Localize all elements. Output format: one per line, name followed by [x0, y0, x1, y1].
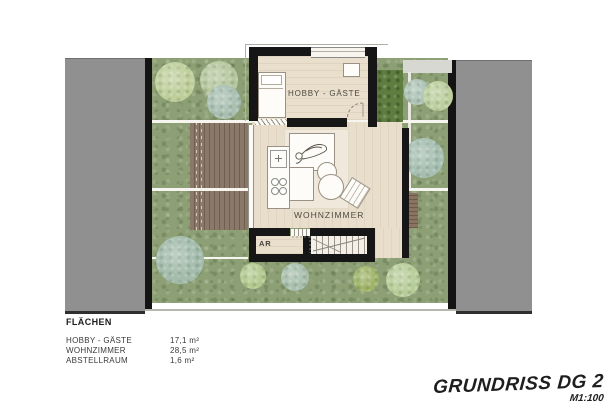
legend-label: HOBBY - GÄSTE — [66, 336, 132, 345]
person-sketch — [296, 144, 327, 163]
floor-plan-sheet: HOBBY - GÄSTE WOHNZIMMER AR FLÄCHEN HOBB… — [0, 0, 616, 416]
room-label-storage: AR — [259, 239, 271, 248]
legend-row: ABSTELLRAUM 1,6 m² — [66, 356, 286, 366]
legend-row: WOHNZIMMER 28,5 m² — [66, 346, 286, 356]
stair-run-line — [313, 238, 365, 251]
legend-row: HOBBY - GÄSTE 17,1 m² — [66, 336, 286, 346]
legend-label: WOHNZIMMER — [66, 346, 126, 355]
legend-title: FLÄCHEN — [66, 317, 286, 327]
legend: FLÄCHEN HOBBY - GÄSTE 17,1 m² WOHNZIMMER… — [66, 317, 286, 366]
legend-value: 17,1 m² — [170, 336, 199, 345]
legend-value: 1,6 m² — [170, 356, 194, 365]
plan-scale: M1:100 — [433, 393, 605, 404]
title-block: GRUNDRISS DG 2 M1:100 — [433, 371, 604, 404]
room-label-living: WOHNZIMMER — [294, 210, 364, 220]
legend-label: ABSTELLRAUM — [66, 356, 128, 365]
door-swing-arc — [348, 103, 363, 117]
legend-value: 28,5 m² — [170, 346, 199, 355]
room-label-hobby: HOBBY - GÄSTE — [288, 89, 361, 98]
